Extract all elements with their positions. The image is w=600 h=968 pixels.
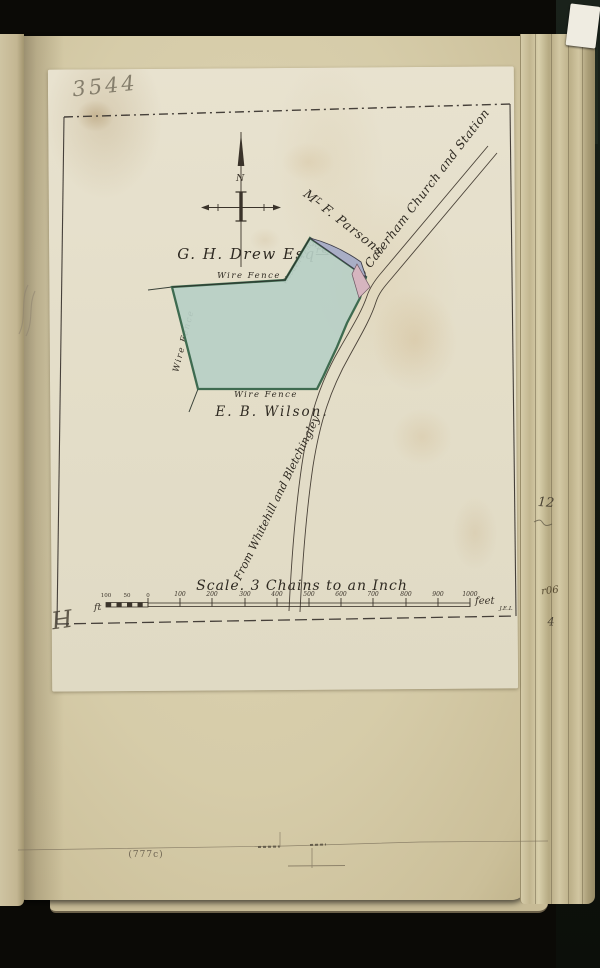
map-border-top [64,104,510,117]
ledger-line [288,866,345,867]
scale-tick-label: 400 [270,591,283,598]
scale-sub-cell [117,603,122,608]
scale-tick-label: 200 [205,591,218,598]
scale-tick-label: 500 [303,591,315,598]
scale-unit-ft: ft [93,602,102,613]
faint-scribble-page-edge [534,520,552,525]
scale-tick-label: 800 [400,591,412,598]
scale-sub-label: 50 [124,593,131,599]
scale-sub-cell [138,603,143,608]
compass-north-letter: N [235,173,245,184]
map-border-right [510,104,516,616]
compass-arm-tip-west [201,205,209,211]
compass-north-arrow [238,133,245,166]
faint-scribble-left-gutter [19,285,35,336]
scale-ticks [148,598,470,607]
scale-sub-label: 0 [146,593,150,599]
scale-tick-label: 900 [432,591,444,598]
scale-sub-cell [127,603,132,608]
ledger-line [18,841,548,850]
scale-bar: 100 50 0 100 200 300 400 500 600 700 800… [93,591,496,613]
ledger-ruled-lines [18,832,548,868]
compass-rose: N [201,132,281,267]
scale-tick-label: 300 [239,591,251,598]
scale-tick-label: 100 [174,591,186,598]
wilson-plot-parcel [172,238,366,389]
scale-tick-label: 700 [367,591,379,598]
scanned-survey-book-photo: N 100 50 0 100 200 300 4 [0,0,600,968]
scale-sub-cell [106,603,111,608]
scale-sub-label: 100 [101,593,112,599]
map-border-bottom [57,616,516,624]
map-border-left [57,117,64,624]
map-artwork: N 100 50 0 100 200 300 4 [0,0,600,968]
compass-arm-tip-east [273,205,281,211]
road-right-edge [300,153,497,612]
scale-unit-feet: feet [474,596,496,607]
scale-tick-label: 600 [335,591,347,598]
